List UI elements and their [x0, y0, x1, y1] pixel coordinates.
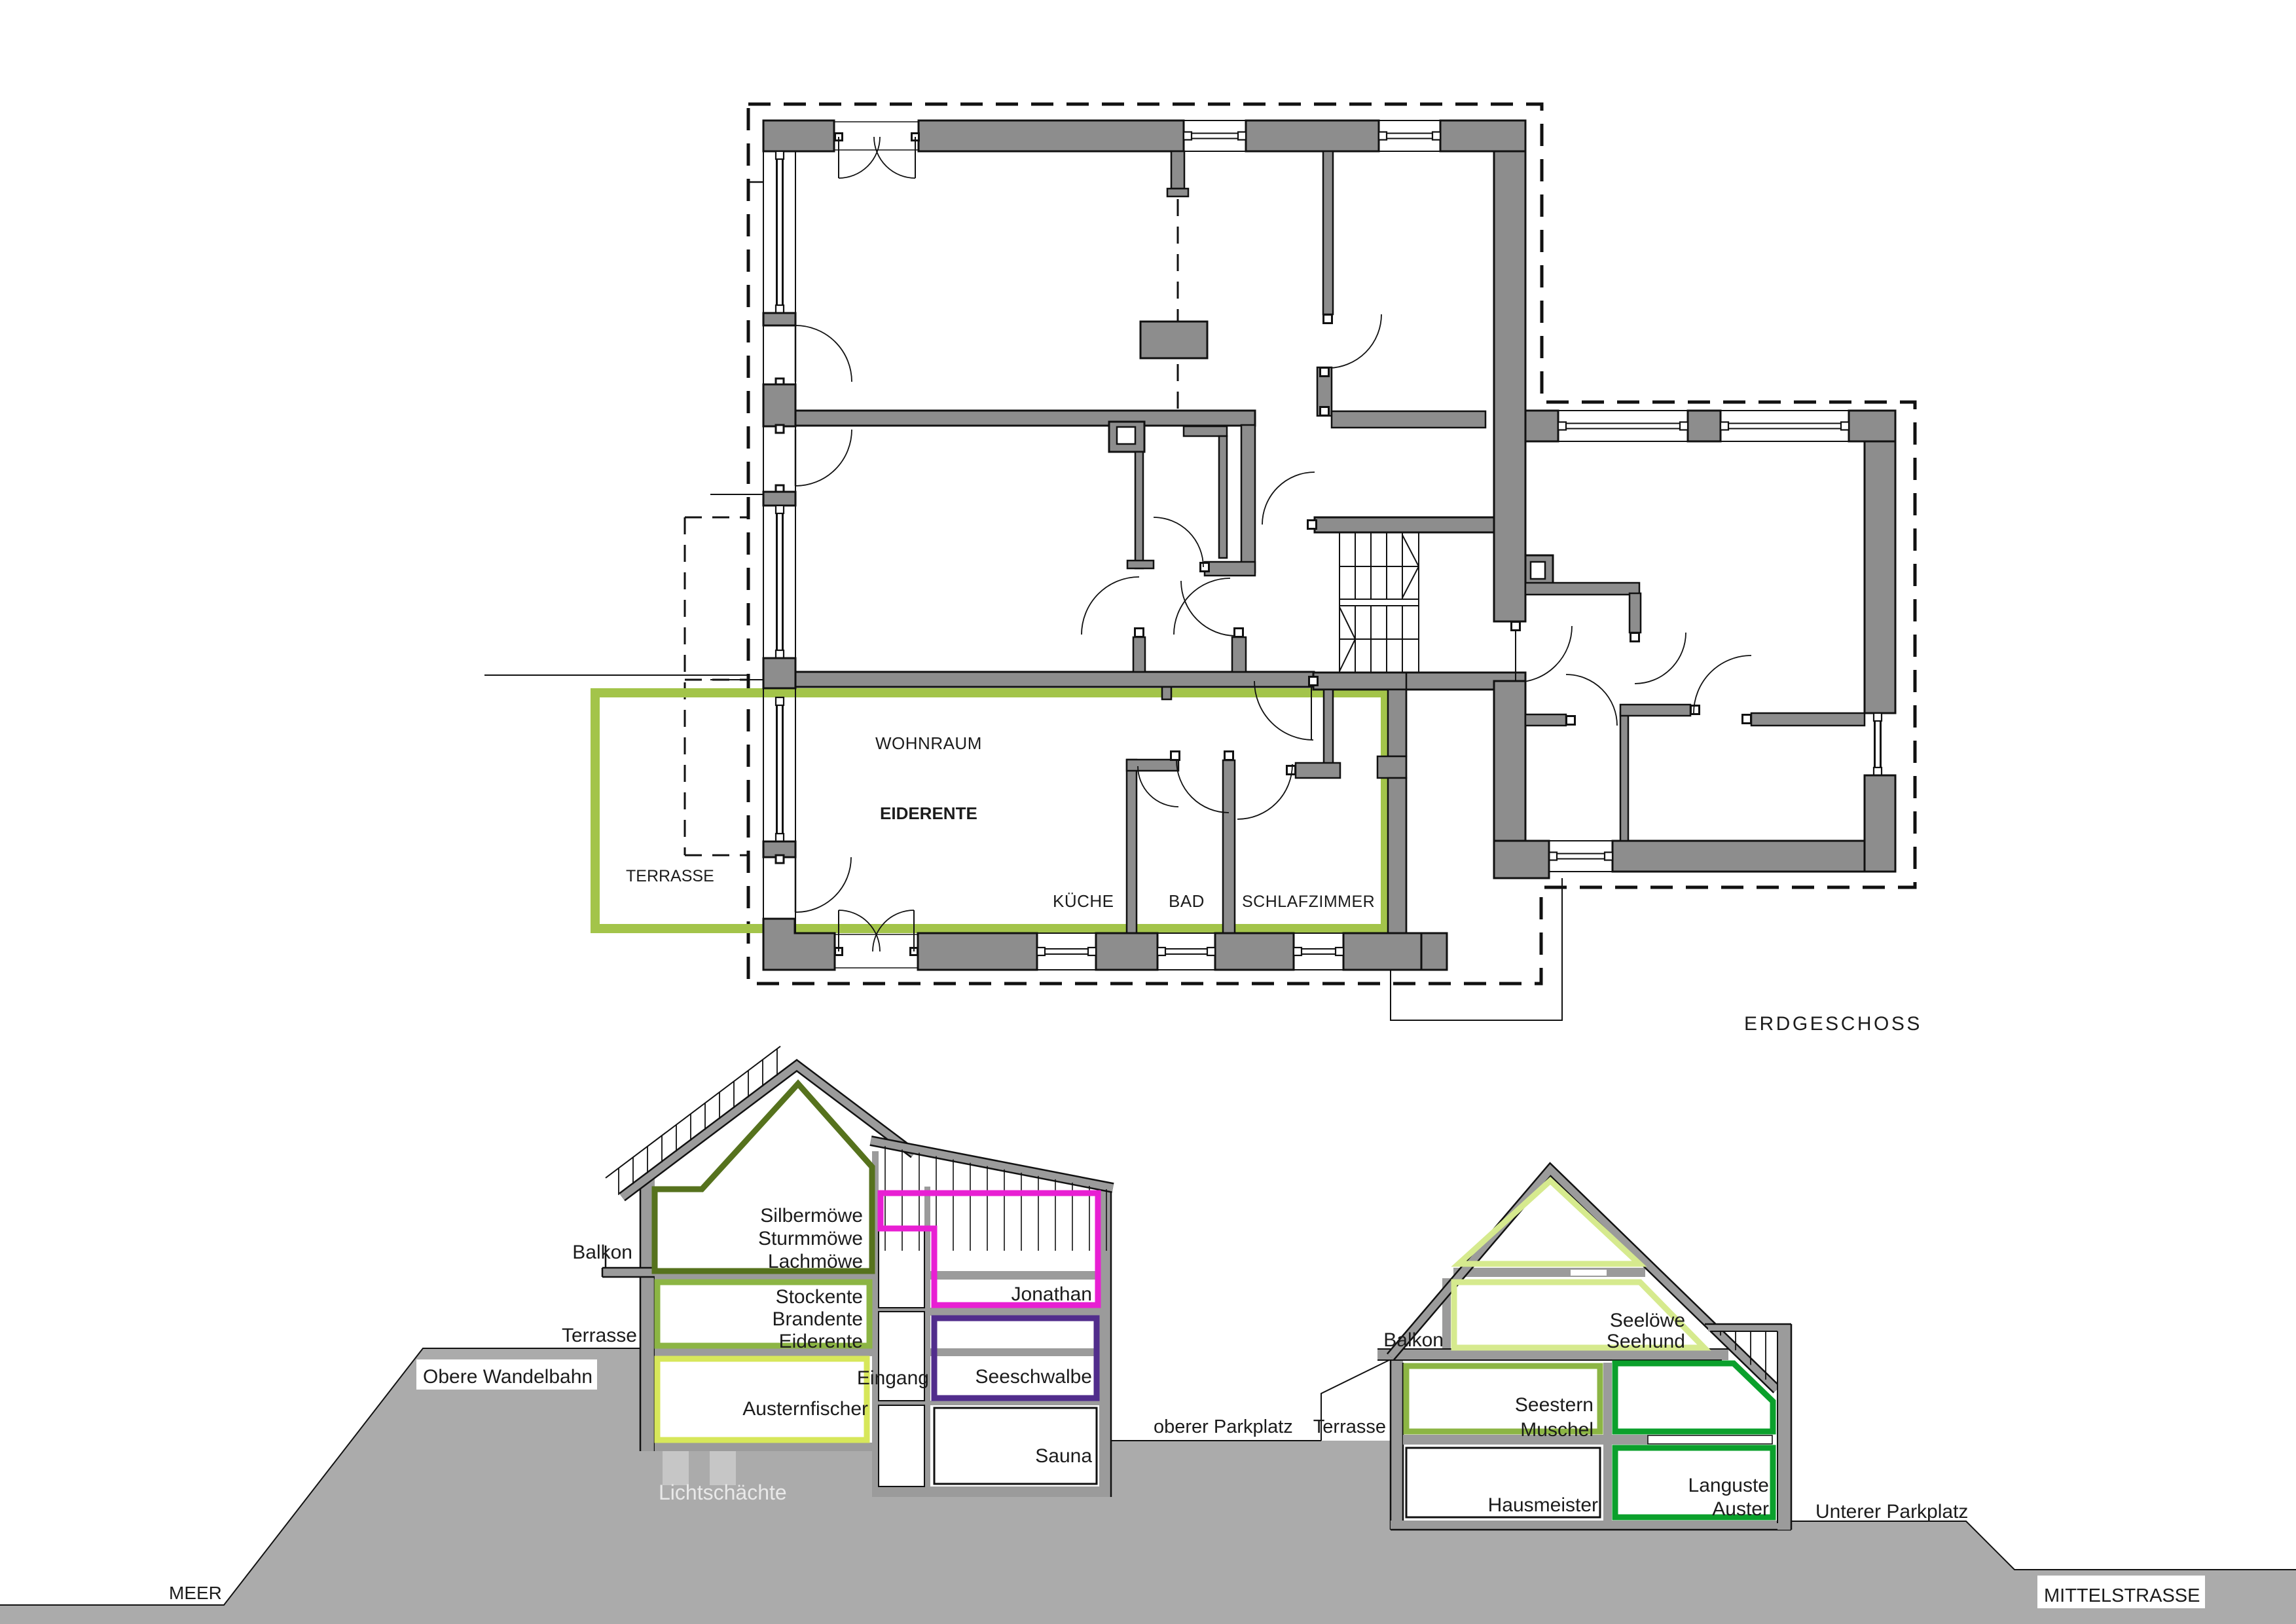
- svg-text:WOHNRAUM: WOHNRAUM: [875, 733, 982, 753]
- svg-text:Brandente: Brandente: [773, 1308, 863, 1330]
- svg-text:Eingang: Eingang: [857, 1367, 929, 1389]
- svg-text:Hausmeister: Hausmeister: [1488, 1494, 1598, 1516]
- svg-text:MITTELSTRASSE: MITTELSTRASSE: [2044, 1585, 2200, 1606]
- svg-text:Balkon: Balkon: [572, 1242, 632, 1263]
- svg-text:MEER: MEER: [169, 1583, 222, 1603]
- svg-text:Eiderente: Eiderente: [779, 1331, 863, 1352]
- svg-text:oberer Parkplatz: oberer Parkplatz: [1154, 1416, 1293, 1437]
- svg-text:Lichtschächte: Lichtschächte: [659, 1481, 787, 1504]
- svg-text:EIDERENTE: EIDERENTE: [880, 803, 977, 823]
- svg-text:ERDGESCHOSS: ERDGESCHOSS: [1744, 1013, 1922, 1035]
- svg-text:Obere Wandelbahn: Obere Wandelbahn: [423, 1366, 592, 1388]
- svg-text:Auster: Auster: [1712, 1498, 1769, 1520]
- svg-text:Silbermöwe: Silbermöwe: [760, 1205, 863, 1227]
- svg-text:Jonathan: Jonathan: [1011, 1283, 1092, 1305]
- svg-text:Stockente: Stockente: [776, 1286, 863, 1308]
- svg-text:Balkon: Balkon: [1383, 1329, 1444, 1351]
- svg-text:Muschel: Muschel: [1520, 1419, 1594, 1441]
- svg-text:Austernfischer: Austernfischer: [742, 1398, 868, 1420]
- svg-text:Sturmmöwe: Sturmmöwe: [758, 1228, 863, 1249]
- svg-text:TERRASSE: TERRASSE: [626, 867, 714, 885]
- svg-text:SCHLAFZIMMER: SCHLAFZIMMER: [1242, 893, 1375, 911]
- svg-text:Seelöwe: Seelöwe: [1610, 1310, 1685, 1331]
- svg-text:Unterer Parkplatz: Unterer Parkplatz: [1815, 1501, 1968, 1522]
- svg-text:Lachmöwe: Lachmöwe: [768, 1251, 863, 1272]
- svg-text:Languste: Languste: [1688, 1475, 1769, 1496]
- svg-text:Terrasse: Terrasse: [562, 1325, 637, 1346]
- svg-text:Sauna: Sauna: [1035, 1445, 1092, 1467]
- svg-text:Terrasse: Terrasse: [1313, 1416, 1386, 1437]
- svg-text:Seehund: Seehund: [1607, 1331, 1685, 1352]
- svg-text:BAD: BAD: [1169, 891, 1205, 911]
- svg-text:Seeschwalbe: Seeschwalbe: [975, 1366, 1092, 1388]
- svg-text:KÜCHE: KÜCHE: [1053, 891, 1114, 911]
- svg-text:Seestern: Seestern: [1515, 1394, 1594, 1416]
